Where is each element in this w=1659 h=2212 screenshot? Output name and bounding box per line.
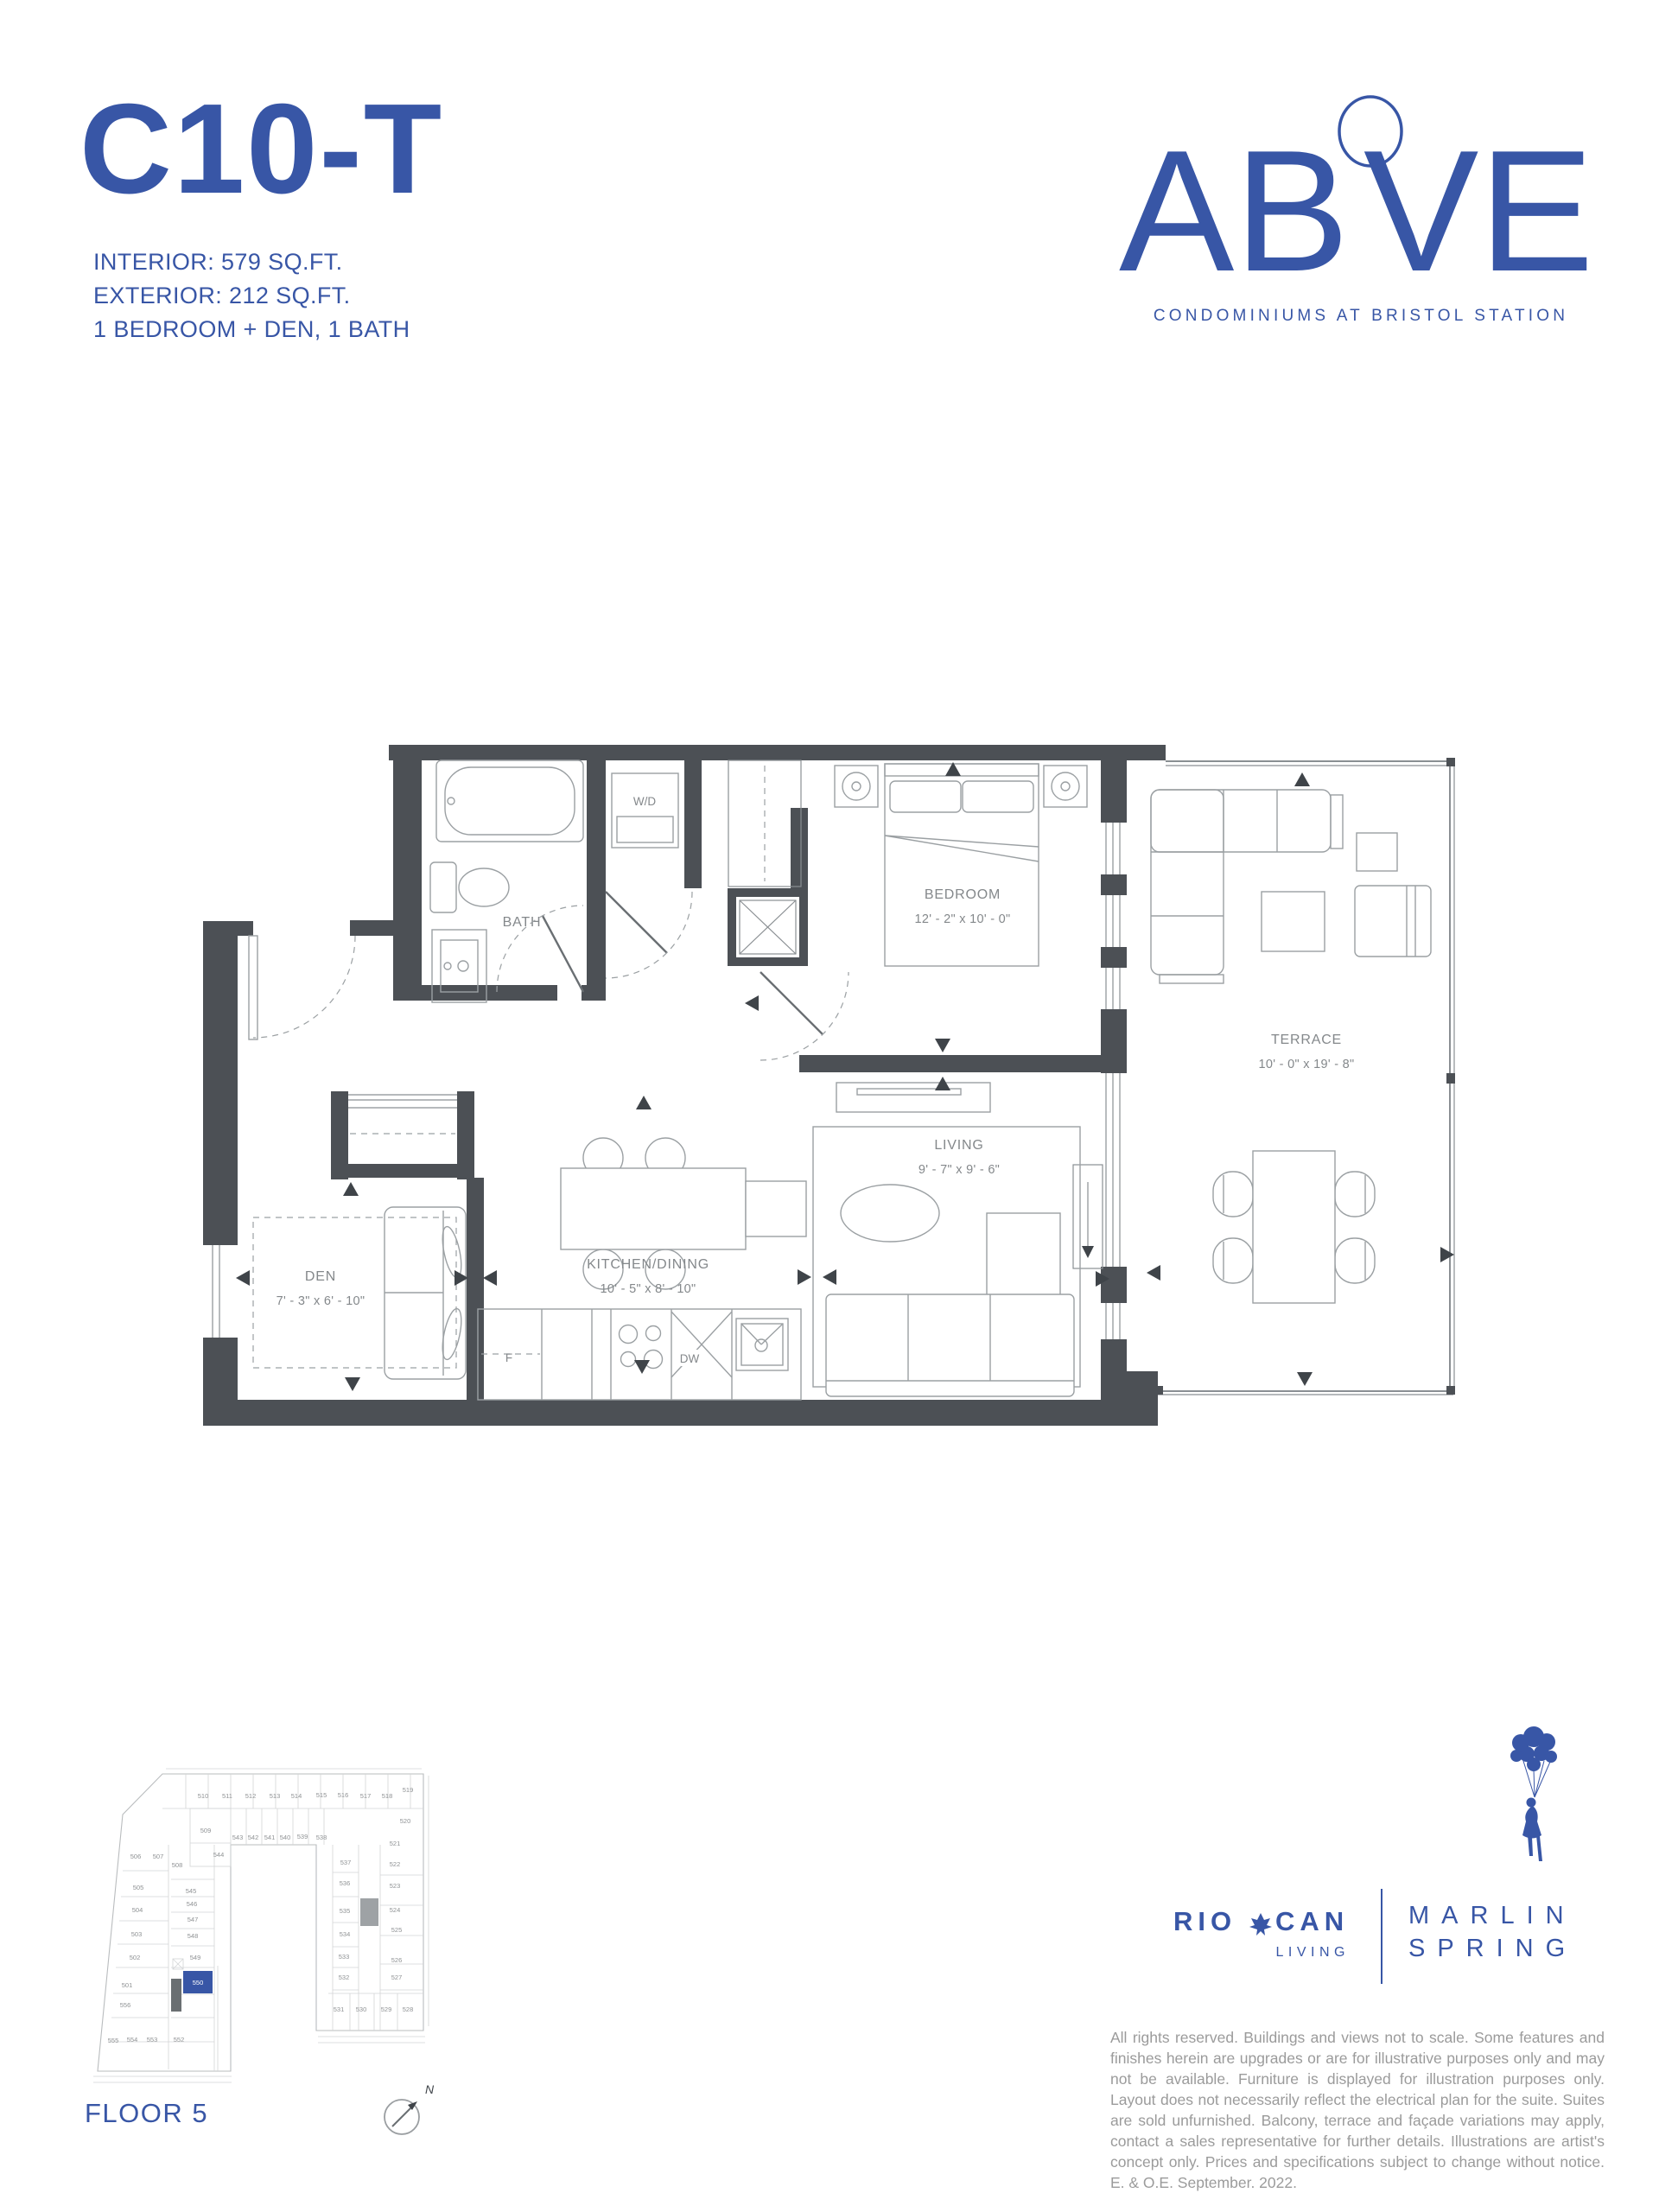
- bedroom-dims: 12' - 2" x 10' - 0": [915, 912, 1011, 926]
- keyplan-unit-number: 556: [120, 2001, 131, 2009]
- den-dims: 7' - 3" x 6' - 10": [276, 1294, 365, 1308]
- toilet-icon: [430, 862, 509, 912]
- nightstand-left-icon: [835, 766, 878, 807]
- living-dims: 9' - 7" x 9' - 6": [918, 1163, 1000, 1177]
- keyplan-unit-number: 545: [186, 1887, 197, 1895]
- marlin-line2: SPRING: [1408, 1932, 1577, 1965]
- living-label: LIVING: [934, 1138, 983, 1153]
- bath-label: BATH: [503, 915, 542, 930]
- shaft: [728, 888, 808, 966]
- keyplan-unit-number: 515: [316, 1791, 327, 1799]
- riocan-word-can: CAN: [1275, 1906, 1349, 1936]
- bed-icon: [885, 764, 1039, 966]
- dishwasher-label: DW: [680, 1352, 700, 1365]
- keyplan-unit-number: 555: [108, 2037, 119, 2044]
- hall-closet: [728, 760, 801, 887]
- laundry-label: W/D: [633, 795, 656, 808]
- bath-sink-icon: [432, 930, 486, 1002]
- keyplan-unit-number: 522: [390, 1860, 401, 1868]
- keyplan-unit-number: 552: [174, 2036, 185, 2044]
- compass-north-label: N: [425, 2082, 435, 2096]
- side-table-icon: [1357, 833, 1397, 871]
- keyplan-unit-number: 525: [391, 1926, 403, 1934]
- keyplan-unit-number: 543: [232, 1834, 244, 1841]
- keyplan-unit-number: 526: [391, 1956, 403, 1964]
- washer-dryer-icon: [612, 773, 678, 848]
- above-logo: AB VE CONDOMINIUMS AT BRISTOL STATION: [1115, 69, 1616, 346]
- living-sofa-icon: [826, 1213, 1074, 1396]
- keyplan-unit-number: 547: [188, 1916, 199, 1923]
- keyplan-unit-number: 546: [187, 1900, 198, 1908]
- keyplan-unit-number: 507: [153, 1853, 164, 1860]
- balloon-girl-logo-icon: [1499, 1718, 1577, 1891]
- terrace: TERRACE 10' - 0" x 19' - 8": [1151, 790, 1431, 1303]
- keyplan-unit-number: 538: [316, 1834, 327, 1841]
- keyplan-unit-number: 533: [339, 1953, 350, 1961]
- keyplan-unit-number: 553: [147, 2036, 158, 2044]
- spec-exterior: EXTERIOR: 212 SQ.FT.: [93, 279, 410, 313]
- keyplan-unit-number: 542: [248, 1834, 259, 1841]
- above-logo-tagline: CONDOMINIUMS AT BRISTOL STATION: [1154, 307, 1568, 325]
- riocan-word-rio: RIO: [1173, 1906, 1236, 1936]
- keyplan-unit-number: 527: [391, 1974, 403, 1981]
- spec-interior: INTERIOR: 579 SQ.FT.: [93, 245, 410, 279]
- bedroom-label: BEDROOM: [925, 887, 1001, 902]
- keyplan-unit-number: 513: [270, 1792, 281, 1800]
- keyplan-unit-number: 502: [130, 1954, 141, 1961]
- unit-specs: INTERIOR: 579 SQ.FT. EXTERIOR: 212 SQ.FT…: [93, 245, 410, 346]
- den-sofa-icon: [385, 1207, 466, 1379]
- bedroom: BEDROOM 12' - 2" x 10' - 0": [760, 764, 1087, 1060]
- keyplan-unit-number: 530: [356, 2005, 367, 2013]
- tv-console-icon: [836, 1083, 990, 1112]
- keyplan-unit-number: 524: [390, 1906, 401, 1914]
- keyplan-unit-number: 509: [200, 1827, 212, 1834]
- above-logo-letters-ab: AB: [1119, 115, 1350, 308]
- dishwasher-icon: DW: [671, 1312, 732, 1377]
- keyplan-elevator-core: [360, 1898, 378, 1926]
- keyplan-unit-number: 505: [133, 1884, 144, 1891]
- legal-disclaimer: All rights reserved. Buildings and views…: [1110, 2027, 1605, 2193]
- riocan-living-label: LIVING: [1276, 1945, 1350, 1960]
- keyplan-unit-number: 512: [245, 1792, 257, 1800]
- fridge-label: F: [505, 1351, 512, 1364]
- keyplan-floor-label: FLOOR 5: [85, 2098, 208, 2129]
- keyplan-unit-number: 536: [340, 1879, 351, 1887]
- floorplan-sheet: C10-T INTERIOR: 579 SQ.FT. EXTERIOR: 212…: [0, 0, 1659, 2212]
- outdoor-armchair-icon: [1355, 886, 1431, 957]
- keyplan-unit-number: 537: [340, 1859, 352, 1866]
- page-title: C10-T: [79, 76, 443, 223]
- nightstand-right-icon: [1044, 766, 1087, 807]
- keyplan-unit-number: 548: [188, 1932, 199, 1940]
- keyplan-unit-number: 519: [403, 1786, 414, 1794]
- keyplan-building-outline: [93, 1769, 429, 2082]
- kitchen-dims: 10' - 5" x 8' - 10": [601, 1282, 696, 1296]
- keyplan-unit-number: 541: [264, 1834, 276, 1841]
- laundry-door: [606, 892, 692, 978]
- riocan-logo: RIO CAN LIVING: [1149, 1892, 1374, 1970]
- keyplan-unit-number: 506: [130, 1853, 142, 1860]
- keyplan-unit-number: 501: [122, 1981, 133, 1989]
- marlin-spring-logo: MARLIN SPRING: [1408, 1899, 1577, 1965]
- keyplan-unit-number: 544: [213, 1851, 225, 1859]
- keyplan-unit-number: 521: [390, 1840, 401, 1847]
- keyplan-unit-number: 508: [172, 1861, 183, 1869]
- floorplan-drawing: BATH W/D: [199, 734, 1460, 1434]
- den-closet: [331, 1091, 474, 1179]
- bathroom: BATH: [430, 760, 583, 1002]
- entry-door: [249, 936, 355, 1039]
- kitchen-sink-icon: [736, 1319, 788, 1370]
- keyplan-unit-number: 520: [400, 1817, 411, 1825]
- bathtub-icon: [436, 760, 583, 842]
- keyplan-unit-number: 517: [360, 1792, 372, 1800]
- outdoor-coffee-table-icon: [1262, 892, 1325, 951]
- keyplan-unit-number: 518: [382, 1792, 393, 1800]
- marlin-line1: MARLIN: [1408, 1899, 1577, 1932]
- keyplan-unit-number: 550: [193, 1979, 204, 1986]
- keyplan-unit-number: 554: [127, 2036, 138, 2044]
- keyplan-unit-number: 532: [339, 1974, 350, 1981]
- laundry-closet: W/D: [606, 773, 692, 978]
- keyplan-unit-number: 510: [198, 1792, 209, 1800]
- keyplan-unit-number: 514: [291, 1792, 302, 1800]
- bedroom-door: [760, 972, 849, 1060]
- compass-icon: N: [372, 2078, 467, 2164]
- keyplan-unit-number: 549: [190, 1954, 201, 1961]
- keyplan-unit-number: 529: [381, 2005, 392, 2013]
- keyplan-stair-core: [171, 1979, 181, 2012]
- keyplan-unit-number: 503: [131, 1930, 143, 1938]
- terrace-dims: 10' - 0" x 19' - 8": [1259, 1058, 1355, 1071]
- spec-configuration: 1 BEDROOM + DEN, 1 BATH: [93, 313, 410, 346]
- keyplan-unit-number: 523: [390, 1882, 401, 1890]
- keyplan-unit-number: 531: [334, 2005, 345, 2013]
- keyplan-unit-number: 535: [340, 1907, 351, 1915]
- keyplan-unit-number: 516: [338, 1791, 349, 1799]
- maple-leaf-icon: [1249, 1913, 1272, 1935]
- keyplan-unit-number: 511: [222, 1792, 232, 1800]
- logo-divider: [1381, 1889, 1382, 1984]
- outdoor-dining-icon: [1213, 1151, 1375, 1303]
- keyplan-unit-number: 504: [132, 1906, 143, 1914]
- keyplan-unit-number: 534: [340, 1930, 351, 1938]
- keyplan-unit-number: 540: [280, 1834, 291, 1841]
- living-room: LIVING 9' - 7" x 9' - 6": [813, 1083, 1080, 1396]
- outdoor-sectional-icon: [1151, 790, 1343, 983]
- keyplan-unit-number: 539: [297, 1833, 308, 1840]
- keyplan-unit-number: 528: [403, 2005, 414, 2013]
- coffee-table-icon: [841, 1185, 939, 1242]
- kitchen-label: KITCHEN/DINING: [587, 1257, 709, 1272]
- terrace-label: TERRACE: [1271, 1033, 1342, 1047]
- sliding-door: [1073, 1165, 1103, 1268]
- kitchen-counter-icon: F DW: [478, 1309, 801, 1400]
- keyplan: 5105115125135145155165175185195205095435…: [86, 1767, 432, 2091]
- den-label: DEN: [305, 1269, 336, 1284]
- den: DEN 7' - 3" x 6' - 10": [253, 1091, 474, 1379]
